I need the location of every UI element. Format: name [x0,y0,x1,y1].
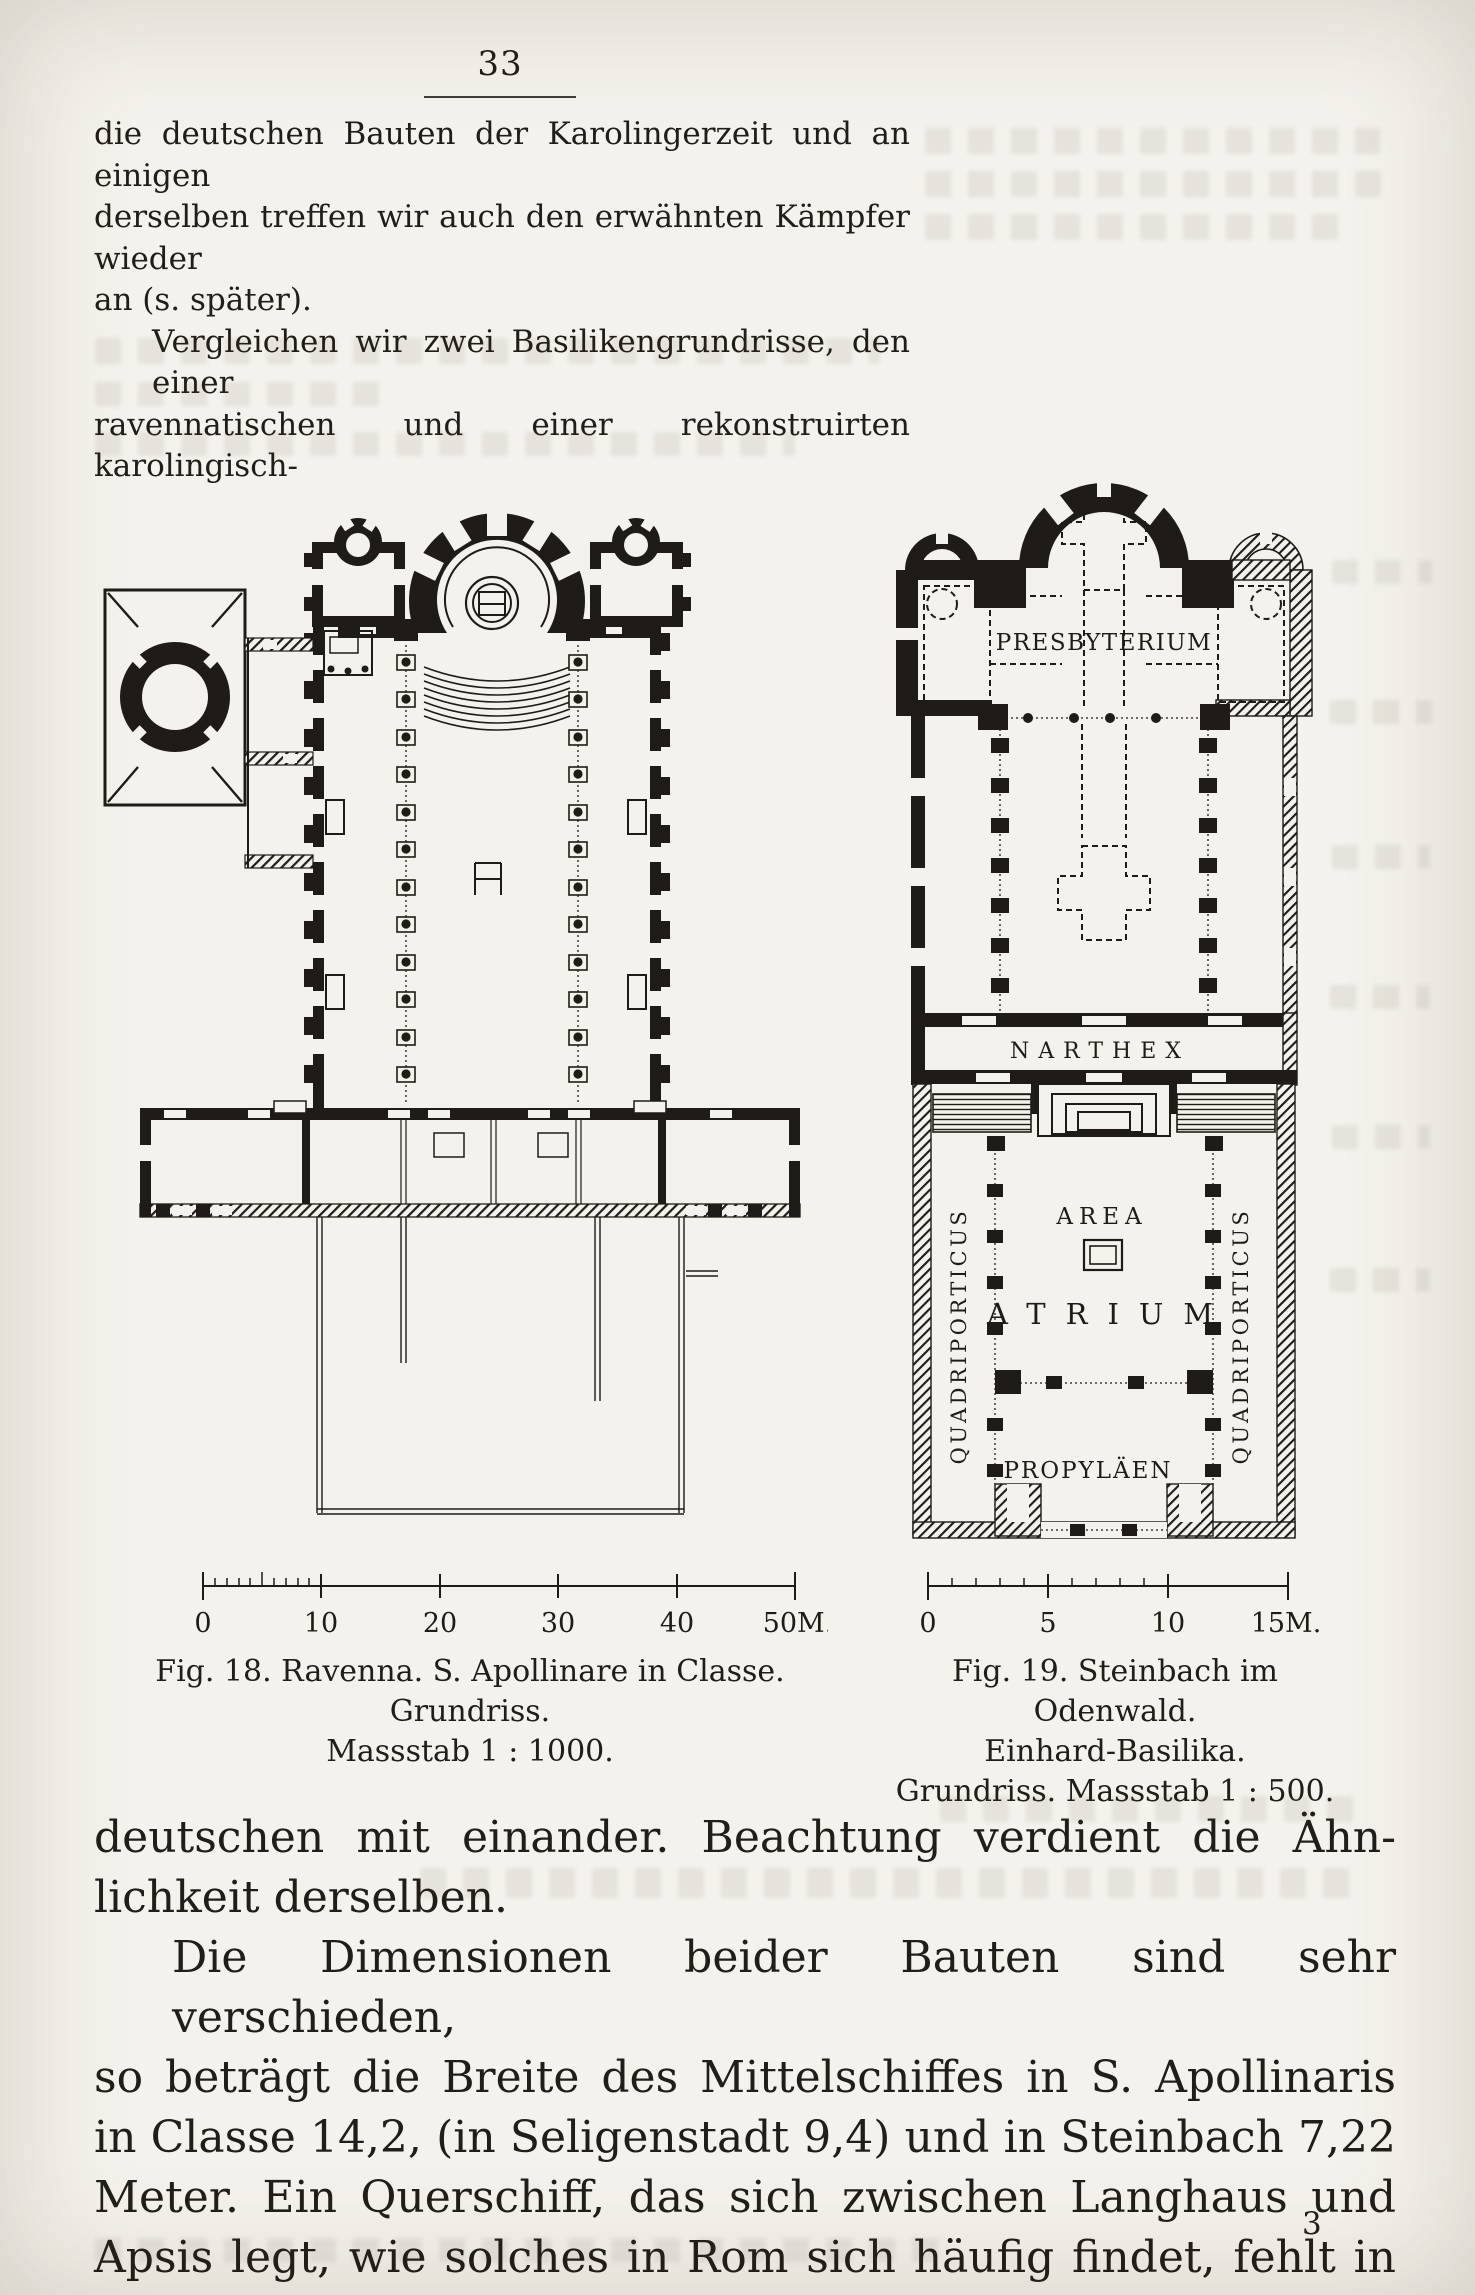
right-chapel [590,514,691,627]
text-line: Meter. Ein Querschiff, das sich zwischen… [94,2168,1396,2228]
colonnades [397,645,587,1105]
crypt-cross [1058,724,1150,940]
fig18-scalebar: 0 10 20 30 40 50M. [168,1556,828,1642]
atrium-outline [317,1217,718,1514]
bleed-through-texture [1330,1268,1430,1292]
campanile [105,590,245,805]
bleed-through-texture [1332,845,1430,869]
page-number: 33 [420,44,580,84]
page-number-rule [424,96,576,98]
bleed-through-texture [1330,700,1432,724]
caption-line: Massstab 1 : 1000. [120,1732,820,1772]
scale-label: 0 [194,1608,211,1639]
fig19-scalebar: 0 5 10 15M. [898,1556,1348,1642]
propylaeen-divider [995,1370,1213,1394]
apse-steps [424,667,570,730]
colonnades [991,724,1217,1013]
atrium-well [1084,1240,1122,1270]
caption-line: Grundriss. [120,1692,820,1732]
scale-label: 20 [423,1608,457,1639]
chancel-line [978,704,1230,730]
bleed-through-texture [940,1796,1360,1822]
bleed-through-texture [95,382,395,406]
aisle-niches [326,800,646,1009]
fig18-caption: Fig. 18. Ravenna. S. Apollinare in Class… [120,1652,820,1772]
caption-line: Fig. 18. Ravenna. S. Apollinare in Class… [120,1652,820,1692]
bleed-through-texture [925,214,1355,240]
signature-mark: 3 [1302,2206,1322,2242]
fig19-plan: PRESBYTERIUM [878,478,1330,1558]
fig19-caption: Fig. 19. Steinbach im Odenwald. Einhard-… [876,1652,1354,1812]
label-area: AREA [1055,1204,1147,1230]
bleed-through-texture [1332,560,1432,584]
label-quadriporticus-left: QUADRIPORTICUS [947,1208,971,1465]
scale-label: 10 [1151,1608,1185,1639]
link-rooms [245,638,313,868]
scale-label: 15M. [1251,1608,1322,1639]
propylaeen-flanks [995,1484,1213,1538]
scale-label: 10 [304,1608,338,1639]
label-atrium: ATRIUM [986,1297,1233,1331]
text-line: die deutschen Bauten der Karolingerzeit … [94,114,910,197]
text-line: Die Dimensionen beider Bauten sind sehr … [94,1928,1396,2048]
caption-line: Einhard-Basilika. [876,1732,1354,1772]
bleed-through-texture [95,2238,955,2262]
fig18-plan [98,505,810,1525]
nave-walls [911,716,1297,1022]
bleed-through-texture [925,128,1380,154]
altar [466,577,518,629]
text-line: in Classe 14,2, (in Seligenstadt 9,4) un… [94,2108,1396,2168]
scale-label: 5 [1039,1608,1056,1639]
caption-line: Fig. 19. Steinbach im Odenwald. [876,1652,1354,1732]
ambo-mark [475,863,501,895]
book-page-scan: 33 die deutschen Bauten der Karolingerze… [0,0,1475,2295]
scale-label: 50M. [763,1608,828,1639]
scale-label: 0 [919,1608,936,1639]
bleed-through-texture [420,1868,1350,1898]
bleed-through-texture [95,338,880,364]
label-presbyterium: PRESBYTERIUM [996,630,1213,656]
left-chapel [304,514,405,627]
bleed-through-texture [925,171,1390,197]
bleed-through-texture [1330,985,1430,1009]
bleed-through-texture [1332,1125,1430,1149]
label-quadriporticus-right: QUADRIPORTICUS [1229,1208,1253,1465]
scale-label: 40 [660,1608,694,1639]
label-narthex: NARTHEX [1010,1039,1190,1064]
nave-walls [304,627,670,1108]
text-line: so beträgt die Breite des Mittelschiffes… [94,2048,1396,2108]
atrium-entry [933,1084,1275,1136]
text-line: an (s. später). [94,280,910,322]
label-propylaeen: PROPYLÄEN [1003,1457,1172,1484]
text-line: derselben treffen wir auch den erwähnten… [94,197,910,280]
scale-label: 30 [541,1608,575,1639]
narthex [140,1101,800,1217]
bleed-through-texture [95,432,795,456]
